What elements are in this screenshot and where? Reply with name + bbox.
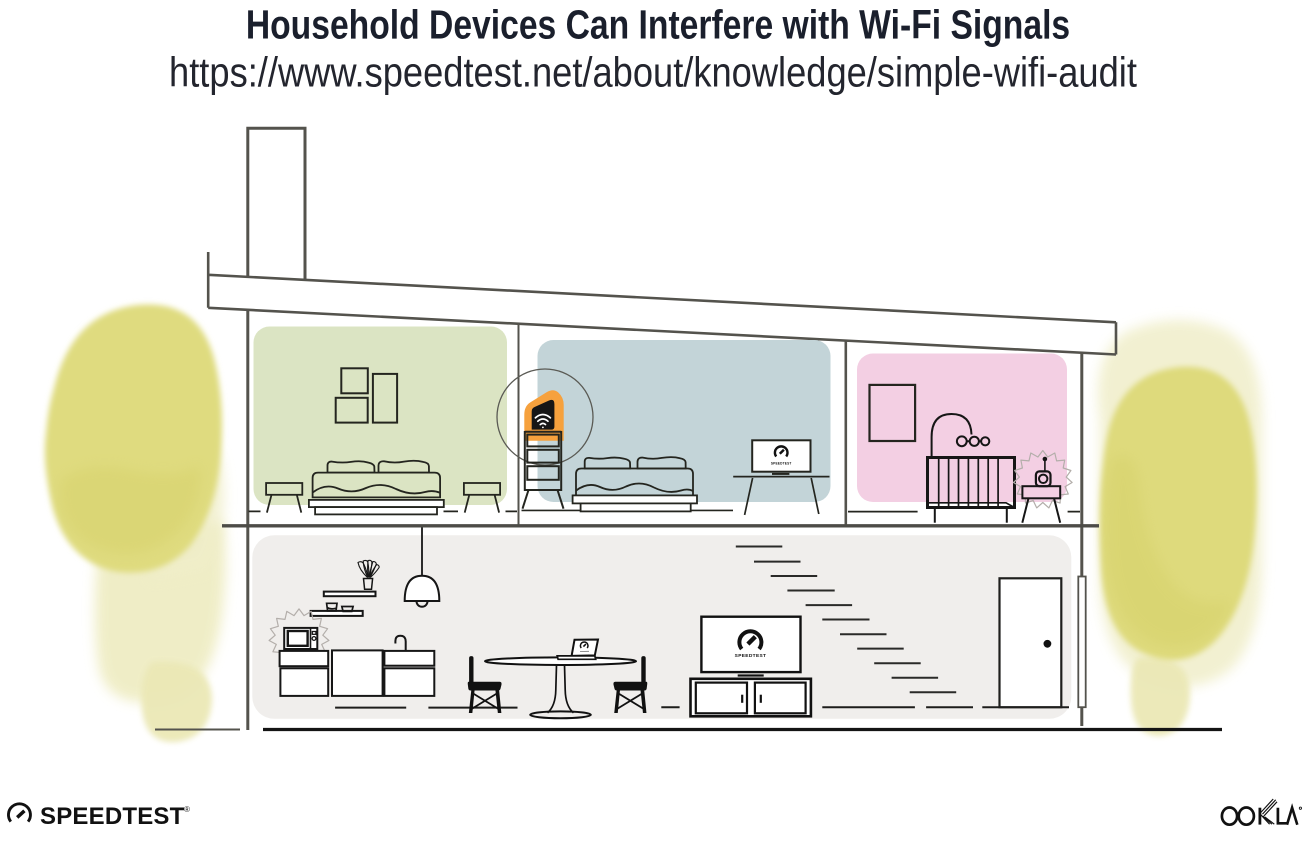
svg-text:https://www.speedtest.net/abou: https://www.speedtest.net/about/knowledg…: [169, 49, 1137, 96]
svg-text:SPEEDTEST: SPEEDTEST: [771, 462, 792, 466]
svg-text:®: ®: [184, 805, 190, 814]
svg-text:SPEEDTEST: SPEEDTEST: [40, 803, 185, 830]
svg-text:Household Devices Can Interfer: Household Devices Can Interfere with Wi-…: [246, 1, 1070, 47]
svg-text:SPEEDTEST: SPEEDTEST: [735, 653, 767, 659]
